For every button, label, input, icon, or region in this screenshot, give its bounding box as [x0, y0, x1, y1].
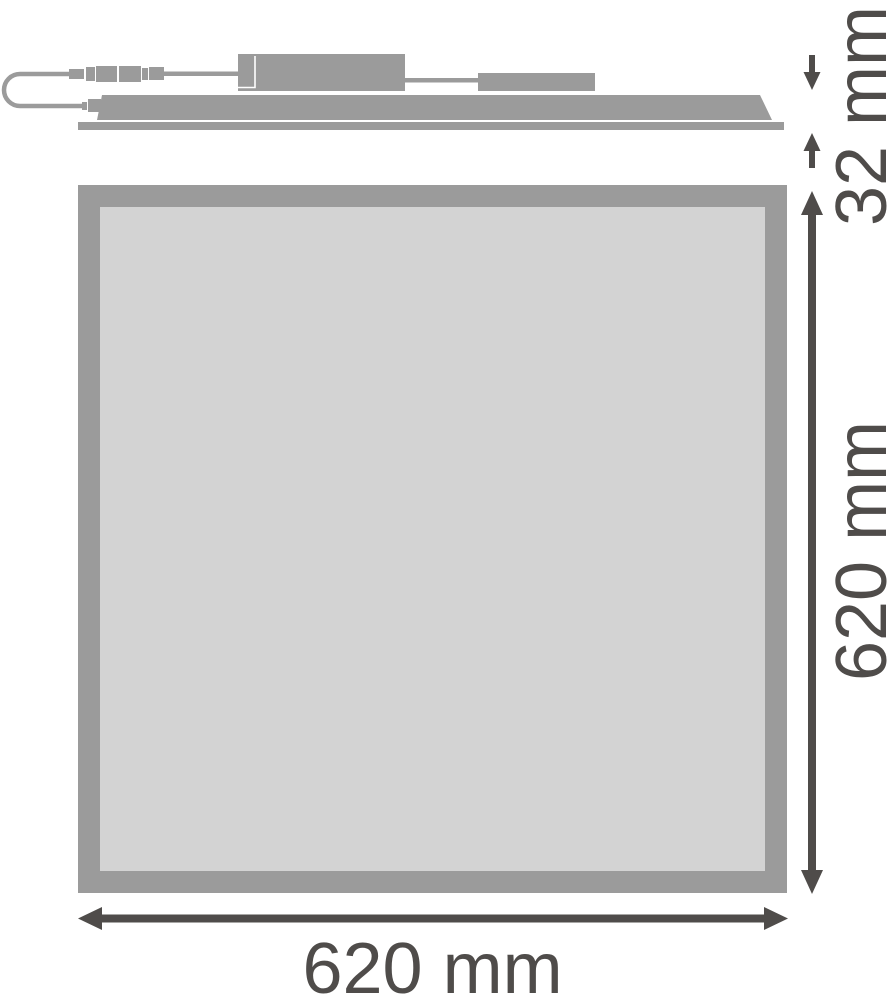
plug-segment: [96, 66, 117, 82]
width-dimension: [78, 907, 788, 930]
thickness-arrow-down-head: [804, 72, 821, 90]
width-arrow-right-head: [764, 907, 788, 930]
side-view: [4, 54, 784, 130]
driver-box-large-body: [238, 54, 405, 91]
height-arrow-bottom-head: [801, 870, 823, 894]
front-view: [78, 185, 787, 893]
thickness-arrow-up-shaft: [809, 149, 815, 168]
plug-segment: [69, 69, 84, 79]
plug-segment: [142, 68, 148, 80]
height-label: 620 mm: [826, 401, 894, 701]
width-label: 620 mm: [78, 933, 787, 1000]
width-arrow-shaft: [100, 915, 766, 923]
plug-segment: [149, 67, 164, 80]
thickness-arrow-up-head: [804, 133, 821, 151]
height-arrow-shaft: [808, 213, 816, 872]
panel-cable-entry: [82, 99, 101, 112]
thickness-label: 32 mm: [826, 0, 894, 266]
driver-box-large: [238, 54, 405, 91]
dimension-diagram: 32 mm 620 mm 620 mm: [0, 0, 894, 1000]
panel-frame-plate: [78, 122, 784, 130]
technical-drawing: [0, 0, 894, 1000]
driver-box-small: [478, 73, 595, 91]
height-arrow-top-head: [801, 191, 823, 215]
driver-link-wire: [405, 78, 478, 83]
thickness-arrow-down-shaft: [809, 55, 815, 74]
width-arrow-left-head: [78, 907, 102, 930]
plug-segment: [86, 67, 95, 81]
entry-segment: [82, 102, 87, 110]
panel-side-profile: [97, 95, 772, 120]
thickness-dimension: [804, 55, 821, 168]
height-dimension: [801, 191, 823, 894]
panel-front-diffuser: [100, 207, 765, 871]
cable-plug-connector: [69, 66, 164, 82]
plug-segment: [119, 66, 141, 82]
plug-lead-wire: [164, 72, 240, 77]
